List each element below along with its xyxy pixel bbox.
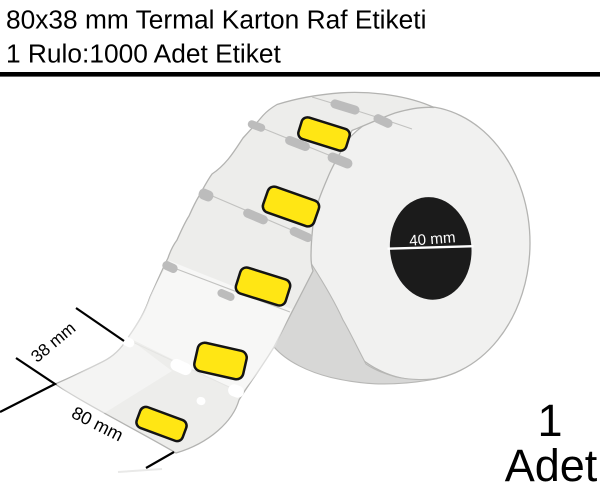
svg-text:1 Rulo:1000 Adet Etiket: 1 Rulo:1000 Adet Etiket — [6, 39, 282, 69]
svg-text:Adet: Adet — [505, 440, 598, 487]
svg-text:1: 1 — [537, 395, 562, 446]
svg-text:80x38 mm Termal Karton Raf Eti: 80x38 mm Termal Karton Raf Etiketi — [6, 4, 426, 34]
svg-text:40 mm: 40 mm — [409, 229, 457, 250]
